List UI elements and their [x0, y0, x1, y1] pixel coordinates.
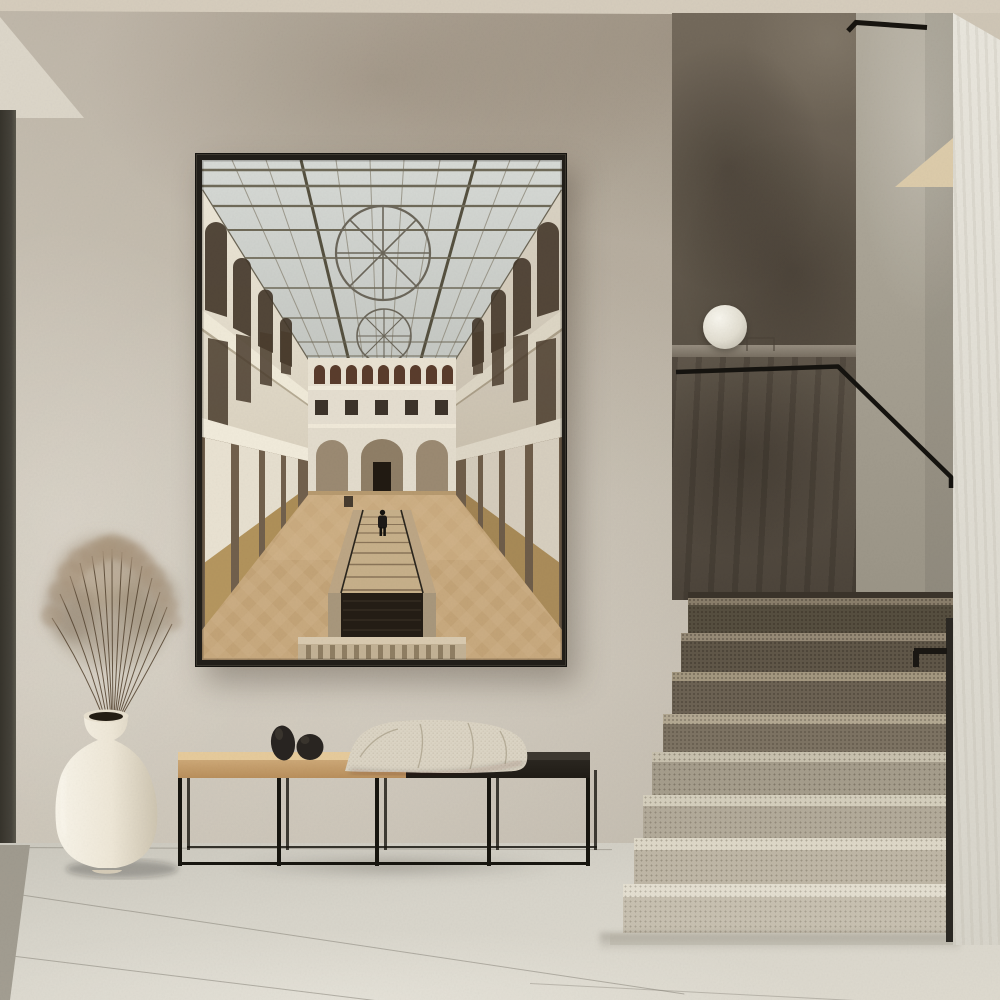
- bench-leg: [496, 770, 499, 850]
- vase-shadow: [66, 860, 178, 878]
- landing-ledge: [672, 345, 860, 357]
- bench-seat-dark-wood: [406, 752, 590, 778]
- bench-shadow: [168, 852, 618, 880]
- rear-loggia: [308, 358, 456, 390]
- stair-step: [652, 752, 953, 795]
- stair-step: [623, 884, 953, 933]
- stair-step: [672, 672, 953, 714]
- vase-mouth: [89, 712, 123, 721]
- stairwell-dark-wall: [672, 13, 856, 357]
- bench-leg: [384, 770, 387, 850]
- foreground-wall-column: [953, 13, 1000, 945]
- throw-blanket: [345, 720, 527, 774]
- atrium-crate: [344, 496, 353, 507]
- bench-leg: [594, 770, 597, 850]
- bench-leg: [277, 778, 281, 866]
- stair-step: [688, 592, 953, 598]
- lamp-stand: [747, 338, 774, 351]
- floor-seam: [0, 847, 612, 850]
- bench-leg: [586, 778, 590, 866]
- rear-lower-arcade: [308, 428, 456, 500]
- bench-bottom-rail-front: [178, 862, 590, 865]
- floor-seam: [0, 953, 419, 1000]
- stair-step: [681, 633, 953, 672]
- main-handrail: [676, 367, 951, 489]
- tile-floor: [0, 843, 1000, 1000]
- framed-poster: [195, 153, 567, 667]
- bench-leg: [178, 778, 182, 866]
- decor-pebbles: [269, 724, 323, 761]
- pebble-round: [297, 734, 324, 760]
- stair-step: [610, 933, 953, 945]
- grass-stems: [52, 549, 172, 719]
- stair-step: [663, 714, 953, 752]
- rear-middle-band: [308, 390, 456, 428]
- pebble-tall: [269, 724, 297, 761]
- stairwell-side-wall: [856, 13, 953, 598]
- bench-seat-light-wood: [178, 752, 406, 778]
- handrail-end-bracket: [914, 651, 947, 667]
- stair-step: [634, 838, 953, 884]
- atrium-balustrade: [298, 637, 466, 660]
- stair-parapet-face: [672, 357, 856, 600]
- bench-leg: [187, 770, 190, 850]
- dark-door-edge: [0, 110, 16, 847]
- stair-step: [643, 795, 953, 838]
- bench-leg: [375, 778, 379, 866]
- stair-foot-shadow: [600, 933, 960, 951]
- sphere-lamp: [703, 305, 747, 349]
- pampas-grass: [41, 534, 182, 719]
- floor-seam: [0, 890, 684, 994]
- floor-vase: [55, 710, 157, 874]
- bench-leg: [286, 770, 289, 850]
- upper-handrail: [848, 23, 927, 32]
- bench-leg: [487, 778, 491, 866]
- bench-bottom-rail-rear: [187, 846, 597, 848]
- floor-seam: [530, 983, 999, 1000]
- poster-art: [202, 160, 562, 660]
- scene-root: [0, 0, 1000, 1000]
- stair-corner-trim: [946, 618, 953, 942]
- stair-step: [688, 598, 953, 633]
